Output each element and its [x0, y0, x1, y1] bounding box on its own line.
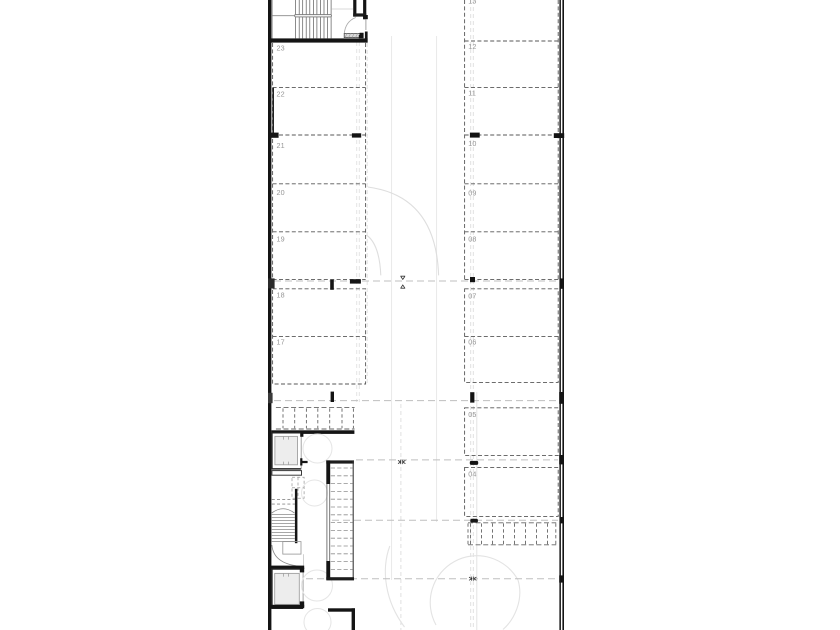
svg-text:09: 09: [468, 189, 476, 198]
svg-text:05: 05: [468, 410, 476, 419]
svg-text:04: 04: [468, 470, 476, 479]
svg-text:12: 12: [468, 42, 476, 51]
svg-text:17: 17: [277, 338, 285, 347]
svg-text:06: 06: [468, 338, 476, 347]
svg-text:21: 21: [277, 141, 285, 150]
svg-text:20: 20: [277, 188, 285, 197]
svg-text:23: 23: [277, 44, 285, 53]
svg-text:13: 13: [468, 0, 476, 5]
svg-text:22: 22: [277, 90, 285, 99]
svg-text:11: 11: [468, 89, 476, 98]
svg-text:10: 10: [468, 139, 476, 148]
svg-text:08: 08: [468, 235, 476, 244]
svg-text:18: 18: [277, 291, 285, 300]
svg-text:19: 19: [277, 235, 285, 244]
svg-text:07: 07: [468, 292, 476, 301]
